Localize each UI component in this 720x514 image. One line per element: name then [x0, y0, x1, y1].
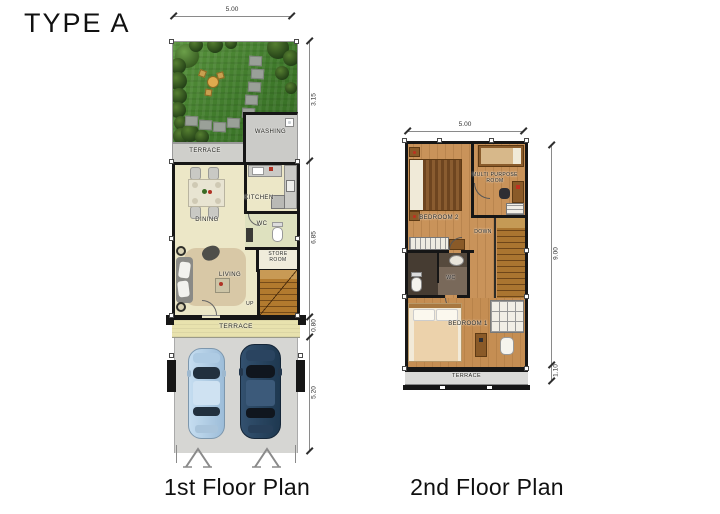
- post: [295, 313, 300, 318]
- drawers: [506, 203, 524, 215]
- washing-room: [243, 112, 298, 162]
- wall: [405, 141, 528, 144]
- wall: [244, 162, 247, 214]
- room-label-living: LIVING: [210, 272, 250, 279]
- bed: [409, 159, 462, 211]
- dimension-line: [407, 131, 523, 132]
- floor-plan-sheet: TYPE A 5.00: [0, 0, 720, 514]
- room-label-store: STORE ROOM: [267, 251, 289, 263]
- pillow: [410, 160, 423, 210]
- stepping-stone: [199, 120, 213, 131]
- house-interior-2f: BEDROOM 2 MULTI PURPOSE ROOM DOWN WC: [405, 141, 528, 370]
- stepping-stone: [248, 82, 262, 93]
- post: [437, 138, 442, 143]
- bush: [207, 41, 223, 53]
- blanket: [423, 160, 461, 210]
- lounge-chair: [500, 337, 514, 355]
- post: [524, 366, 529, 371]
- bed: [478, 145, 524, 167]
- chair: [499, 188, 510, 199]
- car-dark-blue: [239, 343, 282, 440]
- post: [295, 159, 300, 164]
- room-label-terrace-top: TERRACE: [172, 148, 238, 155]
- stair-rail: [494, 218, 496, 298]
- bush: [285, 82, 297, 94]
- room-label-terrace-2f: TERRACE: [405, 373, 528, 380]
- room-label-wc-1f: WC: [252, 221, 272, 228]
- dimension-tick: [520, 127, 527, 134]
- speaker: [176, 246, 186, 256]
- desk: [512, 181, 524, 203]
- room-label-terrace-bottom: TERRACE: [172, 323, 300, 331]
- plate: [215, 198, 221, 204]
- wardrobe: [409, 237, 449, 250]
- dimension-tick: [288, 12, 295, 19]
- speaker: [176, 302, 186, 312]
- sink: [449, 255, 464, 266]
- nightstand: [409, 147, 420, 157]
- edge-line: [176, 445, 177, 463]
- stepping-stone: [227, 118, 241, 129]
- bush: [189, 41, 203, 52]
- base-band: [403, 385, 530, 390]
- pillow: [436, 309, 458, 321]
- stepping-stone: [251, 69, 265, 80]
- sofa-cushion: [177, 280, 190, 297]
- post: [169, 39, 174, 44]
- sink: [252, 167, 264, 175]
- wall-stub: [167, 360, 176, 392]
- room-label-wc-2f: WC: [439, 275, 463, 281]
- second-floor-caption: 2nd Floor Plan: [406, 474, 568, 501]
- headboard: [409, 304, 461, 308]
- stepping-stone: [249, 56, 263, 67]
- desk: [475, 333, 487, 357]
- dimension-label: 0.80: [311, 313, 318, 339]
- dimension-label: 5.20: [311, 380, 318, 406]
- wall: [256, 247, 259, 271]
- post: [489, 138, 494, 143]
- wall: [525, 141, 528, 370]
- garden-stool: [205, 89, 213, 97]
- stepping-stone: [213, 122, 227, 133]
- post: [295, 236, 300, 241]
- post: [402, 138, 407, 143]
- bush: [225, 41, 237, 49]
- table-item: [219, 282, 223, 286]
- dimension-label: 3.15: [311, 87, 318, 113]
- wc-cabinet: [246, 228, 253, 242]
- post: [169, 353, 174, 358]
- dimension-label: 9.00: [553, 241, 560, 267]
- bed: [408, 303, 462, 362]
- post: [298, 353, 303, 358]
- post: [402, 248, 407, 253]
- edge-line: [295, 445, 296, 463]
- first-floor-caption: 1st Floor Plan: [156, 474, 318, 501]
- wc-floor-light: [438, 267, 467, 295]
- dimension-label: 5.00: [203, 6, 261, 13]
- stairs-down: [497, 218, 525, 298]
- centerpiece: [208, 190, 212, 194]
- post: [524, 138, 529, 143]
- bush: [283, 50, 298, 66]
- page-title: TYPE A: [24, 8, 131, 39]
- stair-diagonal: [260, 270, 297, 315]
- dimension-line: [173, 16, 291, 17]
- room-label-washing: WASHING: [243, 129, 298, 136]
- dimension-label: 1.10: [553, 358, 560, 384]
- centerpiece: [202, 189, 207, 194]
- base-notch: [440, 386, 445, 389]
- pillow: [513, 148, 521, 164]
- post: [402, 294, 407, 299]
- toilet: [411, 277, 422, 292]
- garden-stool: [198, 69, 207, 78]
- bush: [275, 66, 289, 80]
- toilet: [272, 227, 283, 242]
- post: [169, 159, 174, 164]
- room-label-dining: DINING: [180, 217, 234, 224]
- stove: [286, 180, 295, 192]
- wardrobe-shelves: [490, 300, 524, 333]
- plate: [192, 182, 198, 188]
- car-light-blue: [187, 347, 226, 440]
- room-label-bedroom1: BEDROOM 1: [439, 321, 497, 328]
- sofa-cushion: [178, 261, 191, 278]
- room-label-kitchen: KITCHEN: [240, 195, 278, 202]
- dimension-label: 6.85: [311, 225, 318, 251]
- room-label-up: UP: [242, 301, 258, 307]
- blanket: [481, 148, 513, 164]
- post: [169, 313, 174, 318]
- post: [524, 248, 529, 253]
- coffee-table: [215, 278, 230, 293]
- bush: [195, 130, 209, 143]
- base-notch: [487, 386, 492, 389]
- post: [169, 236, 174, 241]
- wall-stub: [296, 360, 305, 392]
- stepping-stone: [185, 116, 199, 127]
- post: [402, 366, 407, 371]
- support-strut: [183, 446, 213, 468]
- house-interior-1f: KITCHEN WC STORE ROOM UP DINING: [172, 162, 300, 318]
- post: [294, 39, 299, 44]
- dimension-label: 5.00: [436, 121, 494, 128]
- post: [524, 294, 529, 299]
- pillow: [413, 309, 435, 321]
- room-label-bedroom2: BEDROOM 2: [411, 215, 467, 222]
- stair-landing: [497, 218, 525, 228]
- plate: [192, 198, 198, 204]
- stepping-stone: [245, 95, 259, 106]
- door-arc: [474, 183, 490, 199]
- kitchen-item: [269, 167, 273, 171]
- plate: [215, 182, 221, 188]
- washing-machine: [285, 118, 294, 127]
- support-strut: [252, 446, 282, 468]
- wall: [467, 250, 470, 298]
- dimension-tick: [306, 447, 313, 454]
- garden-stool: [216, 71, 225, 80]
